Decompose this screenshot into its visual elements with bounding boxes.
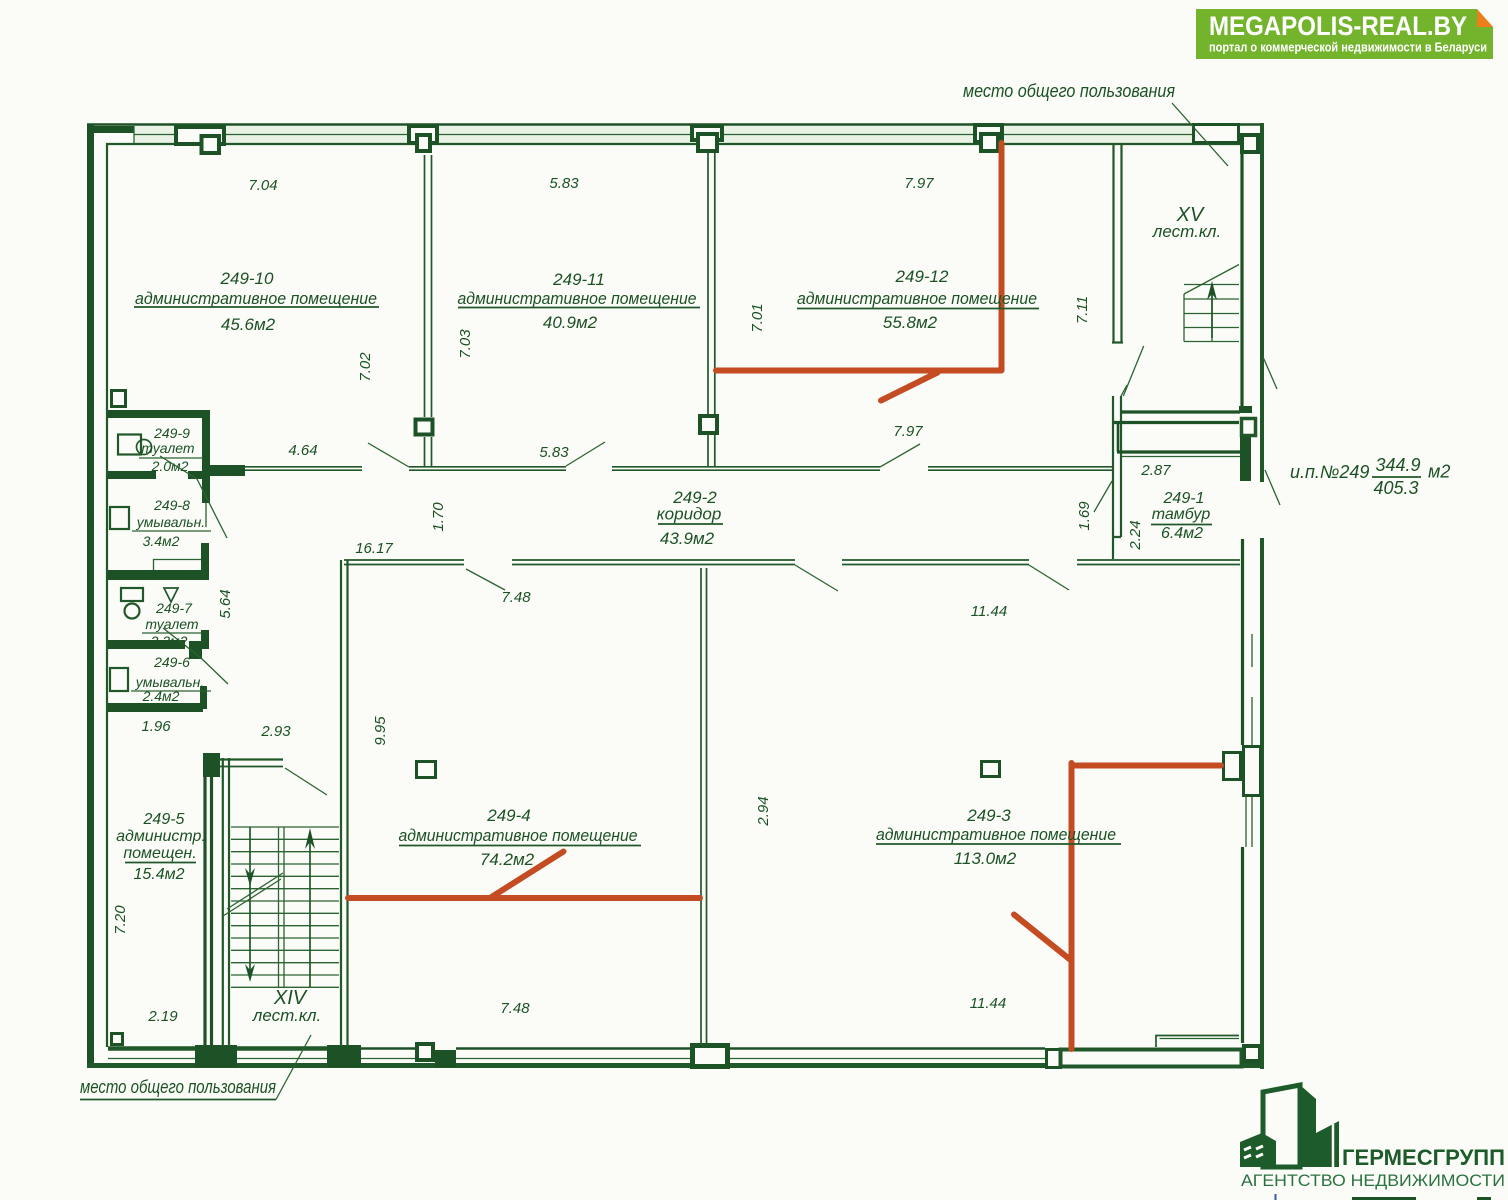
svg-text:249-8: 249-8 [153, 497, 190, 513]
svg-text:249-3: 249-3 [966, 806, 1011, 825]
svg-text:административное помещение: административное помещение [458, 289, 697, 308]
svg-text:и.п.№249: и.п.№249 [1290, 462, 1369, 482]
svg-text:2.4м2: 2.4м2 [142, 688, 180, 704]
svg-text:7.97: 7.97 [904, 175, 934, 192]
svg-text:2.93: 2.93 [260, 723, 291, 740]
svg-text:тамбур: тамбур [1152, 506, 1211, 523]
svg-text:249-11: 249-11 [552, 270, 605, 289]
svg-text:6.4м2: 6.4м2 [1161, 525, 1203, 542]
svg-text:113.0м2: 113.0м2 [954, 849, 1017, 868]
svg-text:2.0м2: 2.0м2 [151, 458, 189, 474]
svg-text:11.44: 11.44 [970, 995, 1006, 1012]
svg-text:5.64: 5.64 [217, 589, 234, 618]
svg-text:5.83: 5.83 [539, 444, 569, 461]
svg-text:7.04: 7.04 [248, 177, 277, 194]
svg-text:коридор: коридор [657, 505, 722, 524]
svg-text:административное помещение: административное помещение [797, 289, 1037, 308]
svg-text:администр.: администр. [116, 828, 206, 845]
svg-text:туалет: туалет [145, 616, 199, 632]
svg-text:умывальн.: умывальн. [136, 514, 205, 530]
svg-text:9.95: 9.95 [372, 716, 389, 746]
svg-text:административное помещение: административное помещение [399, 826, 638, 845]
svg-text:249-9: 249-9 [153, 425, 190, 441]
svg-text:1.96: 1.96 [141, 718, 171, 735]
svg-text:7.20: 7.20 [112, 905, 129, 935]
svg-text:АГЕНТСТВО НЕДВИЖИМОСТИ: АГЕНТСТВО НЕДВИЖИМОСТИ [1241, 1172, 1505, 1190]
svg-text:344.9: 344.9 [1375, 455, 1420, 475]
svg-text:туалет: туалет [141, 440, 195, 456]
svg-text:249-5: 249-5 [143, 811, 185, 828]
svg-text:249-7: 249-7 [155, 600, 193, 616]
svg-text:4.64: 4.64 [288, 442, 317, 459]
svg-text:м2: м2 [1428, 462, 1450, 482]
svg-text:405.3: 405.3 [1373, 478, 1418, 498]
svg-text:помещен.: помещен. [123, 845, 196, 862]
svg-text:3.4м2: 3.4м2 [143, 533, 180, 549]
svg-text:административное помещение: административное помещение [135, 289, 377, 308]
svg-text:2.94: 2.94 [755, 796, 772, 826]
svg-text:2.24: 2.24 [1127, 520, 1144, 550]
svg-text:249-12: 249-12 [895, 267, 949, 286]
svg-text:249-4: 249-4 [486, 806, 530, 825]
svg-text:2.3м2: 2.3м2 [150, 633, 188, 649]
svg-text:7.97: 7.97 [893, 423, 923, 440]
svg-text:лест.кл.: лест.кл. [1152, 222, 1221, 241]
svg-text:7.02: 7.02 [357, 352, 374, 382]
svg-text:249-6: 249-6 [153, 654, 190, 670]
svg-text:7.48: 7.48 [501, 589, 531, 606]
svg-text:MEGAPOLIS-REAL.BY: MEGAPOLIS-REAL.BY [1209, 11, 1467, 41]
svg-text:2.19: 2.19 [147, 1008, 178, 1025]
svg-text:1.69: 1.69 [1076, 501, 1093, 531]
svg-text:5.83: 5.83 [549, 175, 579, 192]
svg-text:2.87: 2.87 [1140, 462, 1171, 479]
svg-text:45.6м2: 45.6м2 [221, 315, 276, 334]
svg-text:место общего пользования: место общего пользования [963, 81, 1175, 101]
svg-text:249-10: 249-10 [220, 269, 274, 288]
svg-text:портал о коммерческой недвижим: портал о коммерческой недвижимости в Бел… [1209, 40, 1487, 55]
svg-text:55.8м2: 55.8м2 [883, 313, 938, 332]
svg-text:74.2м2: 74.2м2 [480, 850, 535, 869]
svg-text:7.03: 7.03 [457, 329, 474, 359]
svg-text:7.48: 7.48 [500, 1000, 530, 1017]
svg-text:15.4м2: 15.4м2 [133, 866, 184, 883]
svg-text:1.70: 1.70 [430, 502, 447, 532]
svg-text:40.9м2: 40.9м2 [543, 313, 598, 332]
svg-text:43.9м2: 43.9м2 [660, 529, 715, 548]
svg-text:место общего пользования: место общего пользования [80, 1077, 276, 1097]
svg-text:16.17: 16.17 [355, 540, 393, 557]
svg-text:административное помещение: административное помещение [876, 825, 1116, 844]
svg-text:лест.кл.: лест.кл. [252, 1006, 321, 1025]
svg-text:7.11: 7.11 [1074, 296, 1091, 324]
svg-text:ГЕРМЕСГРУПП: ГЕРМЕСГРУПП [1342, 1145, 1505, 1170]
svg-text:249-1: 249-1 [1163, 490, 1205, 507]
svg-text:7.01: 7.01 [749, 303, 766, 332]
svg-text:11.44: 11.44 [971, 603, 1007, 620]
